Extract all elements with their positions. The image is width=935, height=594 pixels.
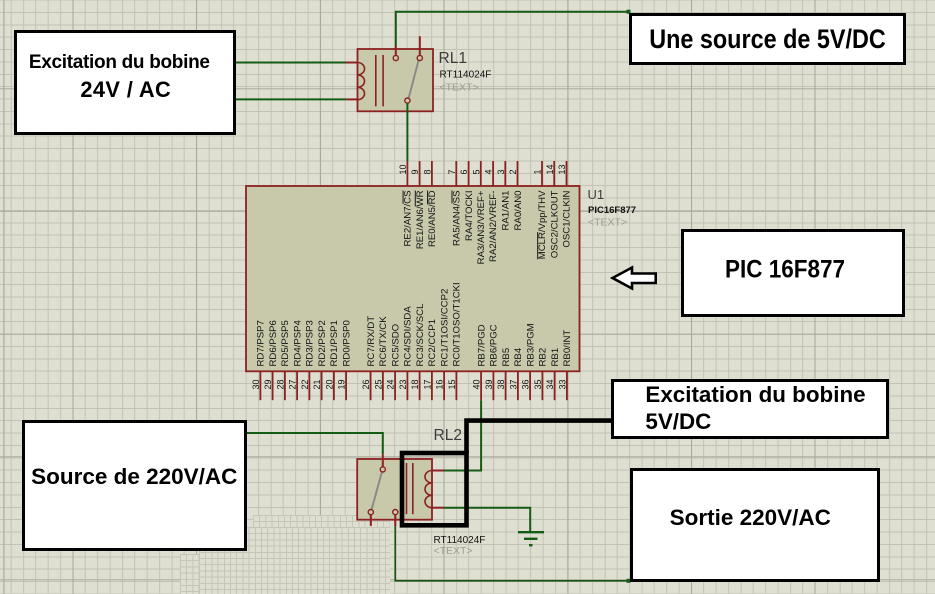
svg-text:RA2/AN2/VREF-: RA2/AN2/VREF- <box>488 191 499 262</box>
svg-text:RD6/PSP6: RD6/PSP6 <box>268 320 279 366</box>
svg-text:RB3/PGM: RB3/PGM <box>525 323 536 366</box>
svg-text:RD5/PSP5: RD5/PSP5 <box>280 320 291 366</box>
svg-text:RC4/SDI/SDA: RC4/SDI/SDA <box>403 306 414 367</box>
svg-text:<TEXT>: <TEXT> <box>588 217 627 229</box>
svg-text:RC7/RX/DT: RC7/RX/DT <box>366 316 377 367</box>
svg-text:27: 27 <box>288 380 298 390</box>
svg-text:38: 38 <box>496 379 506 389</box>
svg-text:RD4/PSP4: RD4/PSP4 <box>292 319 303 366</box>
svg-text:23: 23 <box>398 380 408 390</box>
svg-text:3: 3 <box>496 169 506 174</box>
svg-text:16: 16 <box>435 380 445 390</box>
svg-text:RC2/CCP1: RC2/CCP1 <box>427 319 438 366</box>
svg-text:RC6/TX/CK: RC6/TX/CK <box>378 316 389 367</box>
svg-text:RB7/PGD: RB7/PGD <box>476 324 487 366</box>
svg-text:RB2: RB2 <box>538 348 549 367</box>
svg-text:RD1/PSP1: RD1/PSP1 <box>329 320 340 366</box>
svg-text:25: 25 <box>373 380 383 390</box>
svg-text:RB6/PGC: RB6/PGC <box>489 324 500 366</box>
svg-text:OSC1/CLKIN: OSC1/CLKIN <box>562 190 573 247</box>
svg-text:19: 19 <box>337 380 347 390</box>
svg-text:8: 8 <box>422 169 432 174</box>
svg-text:RL2: RL2 <box>434 427 462 444</box>
svg-text:RA3/AN3/VREF+: RA3/AN3/VREF+ <box>476 190 487 264</box>
svg-text:RC0/T1OSO/T1CKI: RC0/T1OSO/T1CKI <box>452 282 463 366</box>
svg-text:RE0/AN5/RD: RE0/AN5/RD <box>427 190 438 247</box>
svg-text:RC1/T1OSI/CCP2: RC1/T1OSI/CCP2 <box>439 289 450 367</box>
svg-text:RB1: RB1 <box>550 348 561 367</box>
svg-text:10: 10 <box>398 164 408 174</box>
svg-text:RD0/PSP0: RD0/PSP0 <box>341 320 352 366</box>
svg-text:17: 17 <box>422 380 432 390</box>
svg-text:RB5: RB5 <box>501 348 512 367</box>
svg-text:2: 2 <box>508 169 518 174</box>
svg-text:RC3/SCK/SCL: RC3/SCK/SCL <box>415 303 426 367</box>
svg-text:7: 7 <box>447 169 457 174</box>
svg-text:36: 36 <box>521 380 531 390</box>
svg-text:28: 28 <box>275 380 285 390</box>
svg-text:33: 33 <box>557 380 567 390</box>
svg-text:RC5/SDO: RC5/SDO <box>390 324 401 367</box>
svg-text:RA1/AN1: RA1/AN1 <box>501 191 512 231</box>
svg-text:RD7/PSP7: RD7/PSP7 <box>256 320 267 366</box>
svg-text:RD2/PSP2: RD2/PSP2 <box>317 320 328 366</box>
svg-text:6: 6 <box>459 169 469 174</box>
svg-text:PIC16F877: PIC16F877 <box>588 205 636 216</box>
svg-text:34: 34 <box>545 380 555 390</box>
svg-text:37: 37 <box>508 380 518 390</box>
svg-text:14: 14 <box>545 164 555 174</box>
svg-text:RE2/AN7/CS: RE2/AN7/CS <box>403 191 414 247</box>
svg-text:24: 24 <box>386 380 396 390</box>
svg-text:RE1/AN6/WR: RE1/AN6/WR <box>415 190 426 249</box>
svg-text:20: 20 <box>324 380 334 390</box>
svg-text:9: 9 <box>410 169 420 174</box>
svg-text:29: 29 <box>263 380 273 390</box>
svg-text:RB0/INT: RB0/INT <box>562 330 573 367</box>
svg-text:35: 35 <box>533 380 543 390</box>
svg-text:RT114024F: RT114024F <box>440 70 492 81</box>
svg-text:5: 5 <box>471 169 481 174</box>
svg-text:4: 4 <box>484 169 494 174</box>
svg-text:40: 40 <box>472 380 482 390</box>
svg-text:13: 13 <box>557 164 567 174</box>
svg-text:RD3/PSP3: RD3/PSP3 <box>305 320 316 366</box>
svg-text:RA0/AN0: RA0/AN0 <box>513 191 524 231</box>
svg-text:15: 15 <box>447 380 457 390</box>
svg-text:18: 18 <box>410 380 420 390</box>
svg-text:RB4: RB4 <box>513 347 524 366</box>
svg-text:MCLR/Vpp/THV: MCLR/Vpp/THV <box>537 190 548 259</box>
svg-text:<TEXT>: <TEXT> <box>440 82 479 94</box>
svg-text:RA4/TOCKI: RA4/TOCKI <box>464 191 475 241</box>
svg-text:RA5/AN4/SS: RA5/AN4/SS <box>452 191 463 246</box>
svg-text:22: 22 <box>300 380 310 390</box>
svg-text:26: 26 <box>361 380 371 390</box>
svg-text:39: 39 <box>484 380 494 390</box>
svg-text:21: 21 <box>312 380 322 390</box>
svg-text:<TEXT>: <TEXT> <box>434 545 473 557</box>
svg-text:30: 30 <box>251 380 261 390</box>
svg-text:OSC2/CLKOUT: OSC2/CLKOUT <box>550 190 561 258</box>
svg-text:U1: U1 <box>588 187 605 202</box>
svg-text:1: 1 <box>533 169 543 174</box>
svg-text:RL1: RL1 <box>439 50 467 67</box>
